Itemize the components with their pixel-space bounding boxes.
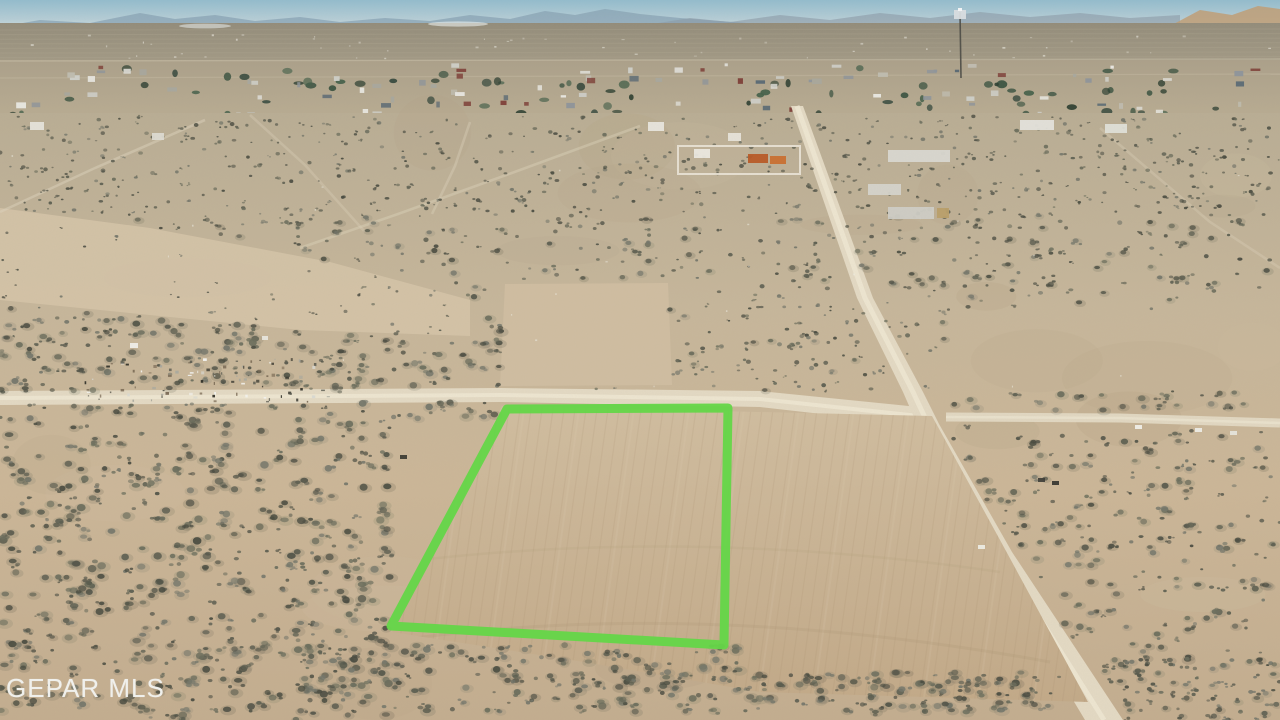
scene-svg — [0, 0, 1280, 720]
watermark-gepar-mls: GEPAR MLS — [6, 673, 165, 704]
photo-grain-overlay — [0, 0, 1280, 720]
aerial-photo: GEPAR MLS — [0, 0, 1280, 720]
